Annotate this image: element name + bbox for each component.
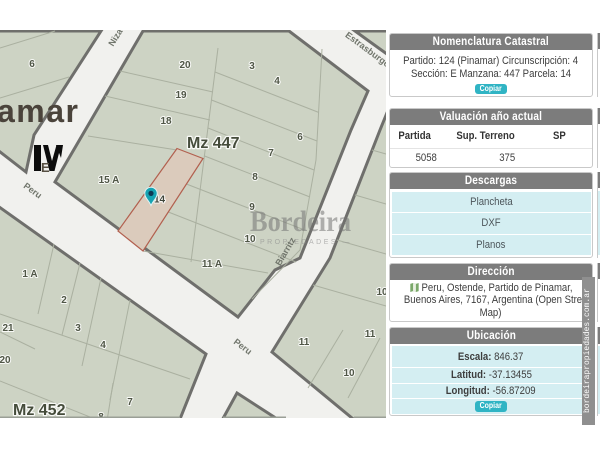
svg-text:15 A: 15 A [99, 175, 120, 186]
svg-text:21: 21 [2, 323, 14, 334]
svg-text:amar: amar [0, 93, 80, 129]
svg-text:E: E [41, 160, 50, 175]
svg-text:7: 7 [268, 148, 274, 159]
svg-text:20: 20 [179, 60, 191, 71]
svg-text:1 A: 1 A [22, 269, 37, 280]
svg-text:10: 10 [343, 368, 355, 379]
svg-text:20: 20 [0, 355, 11, 366]
svg-text:18: 18 [160, 116, 172, 127]
svg-text:7: 7 [127, 397, 133, 408]
svg-text:Bordeira: Bordeira [250, 205, 351, 238]
svg-text:11: 11 [299, 337, 310, 348]
svg-text:2: 2 [61, 295, 67, 306]
svg-text:4: 4 [100, 340, 106, 351]
svg-text:19: 19 [175, 90, 187, 101]
svg-text:Mz 447: Mz 447 [187, 135, 240, 152]
svg-text:3: 3 [75, 323, 81, 334]
svg-text:11: 11 [365, 329, 376, 340]
svg-text:Mz 452: Mz 452 [13, 402, 66, 419]
svg-text:11 A: 11 A [202, 259, 222, 270]
svg-text:6: 6 [29, 59, 35, 70]
svg-text:4: 4 [274, 76, 280, 87]
svg-text:— PROPIEDADES —: — PROPIEDADES — [246, 239, 352, 246]
svg-text:8: 8 [252, 172, 258, 183]
svg-text:3: 3 [249, 61, 255, 72]
svg-text:10: 10 [376, 287, 388, 298]
svg-text:6: 6 [297, 132, 303, 143]
